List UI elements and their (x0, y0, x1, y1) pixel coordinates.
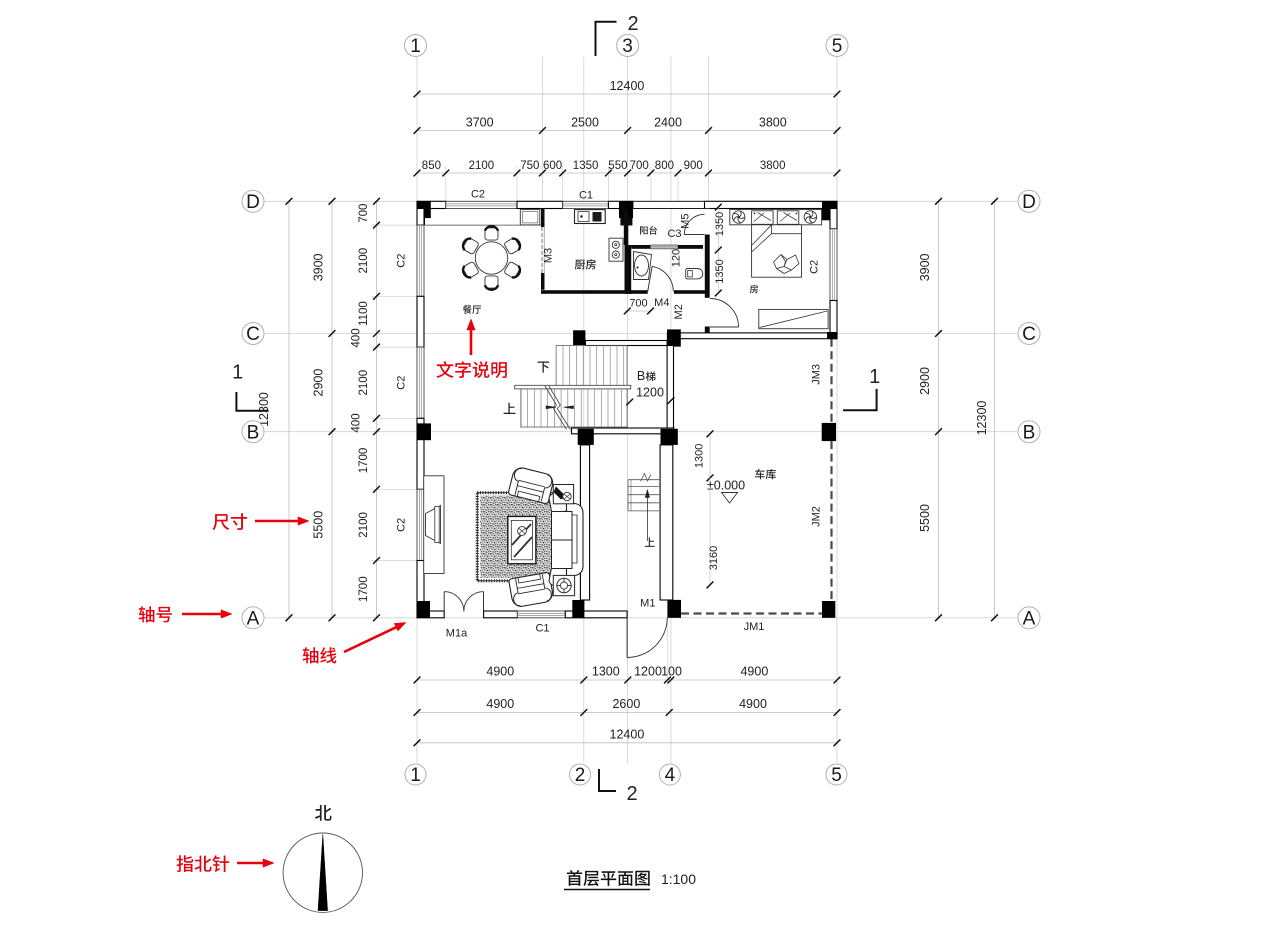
svg-text:D: D (1022, 192, 1036, 213)
svg-text:2100: 2100 (358, 512, 370, 538)
svg-text:M1a: M1a (446, 628, 468, 640)
svg-text:2100: 2100 (469, 160, 495, 172)
svg-text:1: 1 (410, 765, 421, 786)
svg-text:2: 2 (626, 783, 637, 805)
svg-text:12400: 12400 (610, 79, 645, 93)
svg-text:2: 2 (575, 765, 586, 786)
svg-text:M3: M3 (543, 248, 555, 263)
svg-text:1200: 1200 (634, 665, 662, 679)
svg-text:120: 120 (671, 249, 683, 267)
svg-text:4900: 4900 (486, 697, 514, 711)
svg-text:600: 600 (543, 160, 562, 172)
svg-text:5: 5 (832, 36, 843, 57)
svg-text:C: C (246, 324, 260, 345)
svg-text:C3: C3 (667, 228, 681, 240)
svg-text:800: 800 (655, 160, 674, 172)
svg-text:M5: M5 (680, 214, 692, 229)
svg-text:4900: 4900 (486, 665, 514, 679)
svg-text:1: 1 (410, 36, 421, 57)
svg-text:1350: 1350 (714, 212, 726, 236)
svg-text:C: C (1022, 324, 1036, 345)
svg-text:2500: 2500 (571, 116, 599, 130)
svg-text:C2: C2 (809, 260, 821, 274)
svg-text:550: 550 (608, 160, 627, 172)
svg-text:1350: 1350 (714, 259, 726, 283)
svg-text:100: 100 (661, 665, 682, 679)
svg-text:5: 5 (831, 765, 842, 786)
svg-text:1200: 1200 (636, 386, 664, 400)
svg-text:JM3: JM3 (811, 364, 823, 385)
svg-text:1:100: 1:100 (661, 871, 696, 887)
svg-text:3800: 3800 (760, 160, 786, 172)
svg-text:3160: 3160 (708, 546, 720, 570)
svg-text:B: B (247, 422, 260, 443)
svg-text:2900: 2900 (918, 367, 932, 395)
svg-text:C2: C2 (396, 376, 408, 390)
svg-text:700: 700 (358, 204, 370, 223)
svg-text:1300: 1300 (592, 665, 620, 679)
svg-text:C2: C2 (396, 254, 408, 268)
svg-text:400: 400 (351, 328, 363, 347)
svg-text:4900: 4900 (740, 665, 768, 679)
svg-text:D: D (246, 192, 260, 213)
svg-text:2100: 2100 (358, 370, 370, 396)
svg-text:5500: 5500 (918, 504, 932, 532)
svg-text:2: 2 (627, 13, 638, 35)
svg-text:1: 1 (232, 362, 243, 384)
svg-text:1700: 1700 (358, 576, 370, 602)
svg-text:2400: 2400 (654, 116, 682, 130)
svg-text:M4: M4 (654, 297, 669, 309)
svg-text:JM2: JM2 (811, 506, 823, 527)
svg-text:B: B (1023, 422, 1036, 443)
svg-text:1: 1 (869, 366, 880, 388)
svg-text:4900: 4900 (739, 697, 767, 711)
svg-text:700: 700 (629, 298, 647, 310)
svg-text:2900: 2900 (312, 369, 326, 397)
svg-text:4: 4 (665, 765, 676, 786)
svg-text:3: 3 (622, 36, 633, 57)
svg-text:3900: 3900 (918, 253, 932, 281)
svg-text:3700: 3700 (466, 116, 494, 130)
svg-text:3800: 3800 (759, 116, 787, 130)
svg-text:C1: C1 (535, 623, 549, 635)
svg-text:900: 900 (684, 160, 703, 172)
svg-text:12400: 12400 (610, 728, 645, 742)
svg-text:5500: 5500 (312, 511, 326, 539)
svg-text:M1: M1 (640, 598, 655, 610)
svg-text:1700: 1700 (358, 448, 370, 474)
svg-text:C2: C2 (471, 189, 485, 201)
svg-text:A: A (247, 608, 260, 629)
svg-text:A: A (1023, 608, 1036, 629)
svg-text:12300: 12300 (975, 401, 989, 436)
svg-text:M2: M2 (673, 304, 685, 319)
svg-text:±0.000: ±0.000 (707, 479, 745, 493)
svg-text:C2: C2 (396, 518, 408, 532)
svg-text:B: B (637, 369, 645, 383)
svg-text:3900: 3900 (312, 253, 326, 281)
svg-text:750: 750 (520, 160, 539, 172)
svg-text:1300: 1300 (694, 444, 706, 468)
svg-text:400: 400 (351, 413, 363, 432)
svg-text:1350: 1350 (573, 160, 599, 172)
svg-text:1100: 1100 (358, 301, 370, 326)
svg-text:2100: 2100 (358, 248, 370, 274)
svg-text:2600: 2600 (612, 697, 640, 711)
svg-text:C1: C1 (579, 190, 593, 202)
svg-text:JM1: JM1 (744, 621, 765, 633)
svg-text:850: 850 (422, 160, 441, 172)
svg-text:700: 700 (630, 160, 649, 172)
